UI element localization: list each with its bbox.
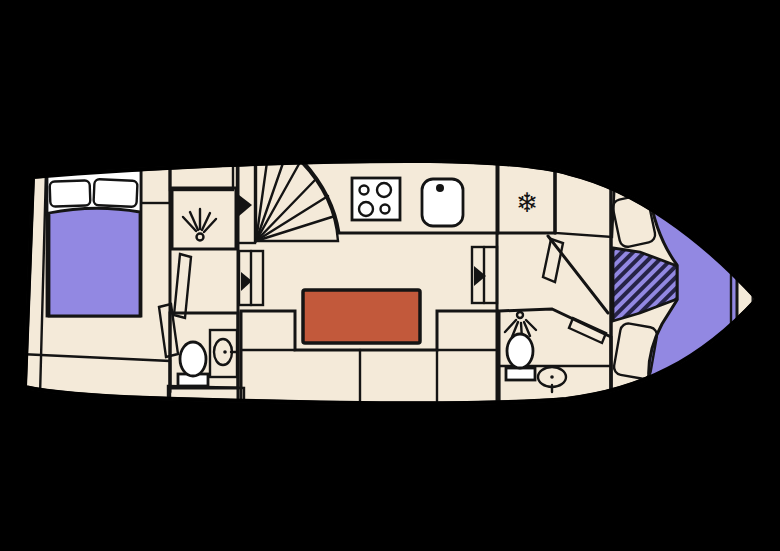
stove-icon — [352, 178, 400, 220]
galley-sink-icon — [422, 179, 463, 226]
aft-sink-drain — [223, 350, 227, 354]
boat-floor-plan: ❄ — [0, 0, 780, 551]
fridge-snowflake-icon: ❄ — [516, 187, 539, 218]
bed-duvet — [49, 208, 140, 316]
floor-plan-canvas: ❄ — [0, 0, 780, 551]
saloon-table — [303, 290, 420, 343]
forward-toilet — [506, 334, 535, 380]
aft-toilet — [178, 342, 208, 386]
